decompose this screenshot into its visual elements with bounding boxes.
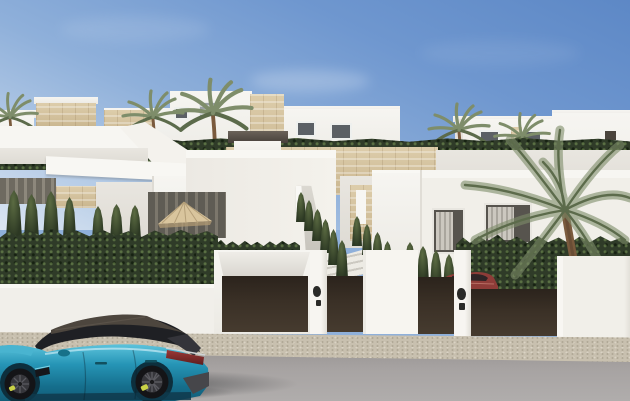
window-curtain xyxy=(436,212,453,250)
boundary-wall-block xyxy=(363,250,418,334)
villa-left-shaded-face xyxy=(96,182,154,238)
garage-door xyxy=(222,276,308,332)
driveway-gate xyxy=(327,276,363,332)
intercom-plaque xyxy=(459,303,465,310)
intercom-plaque xyxy=(457,288,466,300)
driveway-gate-long xyxy=(471,289,557,336)
cloud xyxy=(420,40,580,66)
garage-soffit xyxy=(218,252,310,277)
teal-estate-car xyxy=(0,306,217,401)
cloud xyxy=(250,70,370,92)
back-window xyxy=(330,123,352,140)
driveway-gate xyxy=(418,277,454,334)
cloud xyxy=(60,16,210,42)
front-hedge-left xyxy=(0,226,218,290)
villa-render-scene xyxy=(0,0,630,401)
car-mirror xyxy=(58,350,70,357)
intercom-plaque xyxy=(313,286,321,297)
back-window xyxy=(296,121,316,137)
car-wheel-rear xyxy=(136,366,169,399)
car-wheel-front xyxy=(5,369,36,400)
intercom-plaque xyxy=(316,300,321,306)
boundary-wall-right xyxy=(557,256,630,340)
